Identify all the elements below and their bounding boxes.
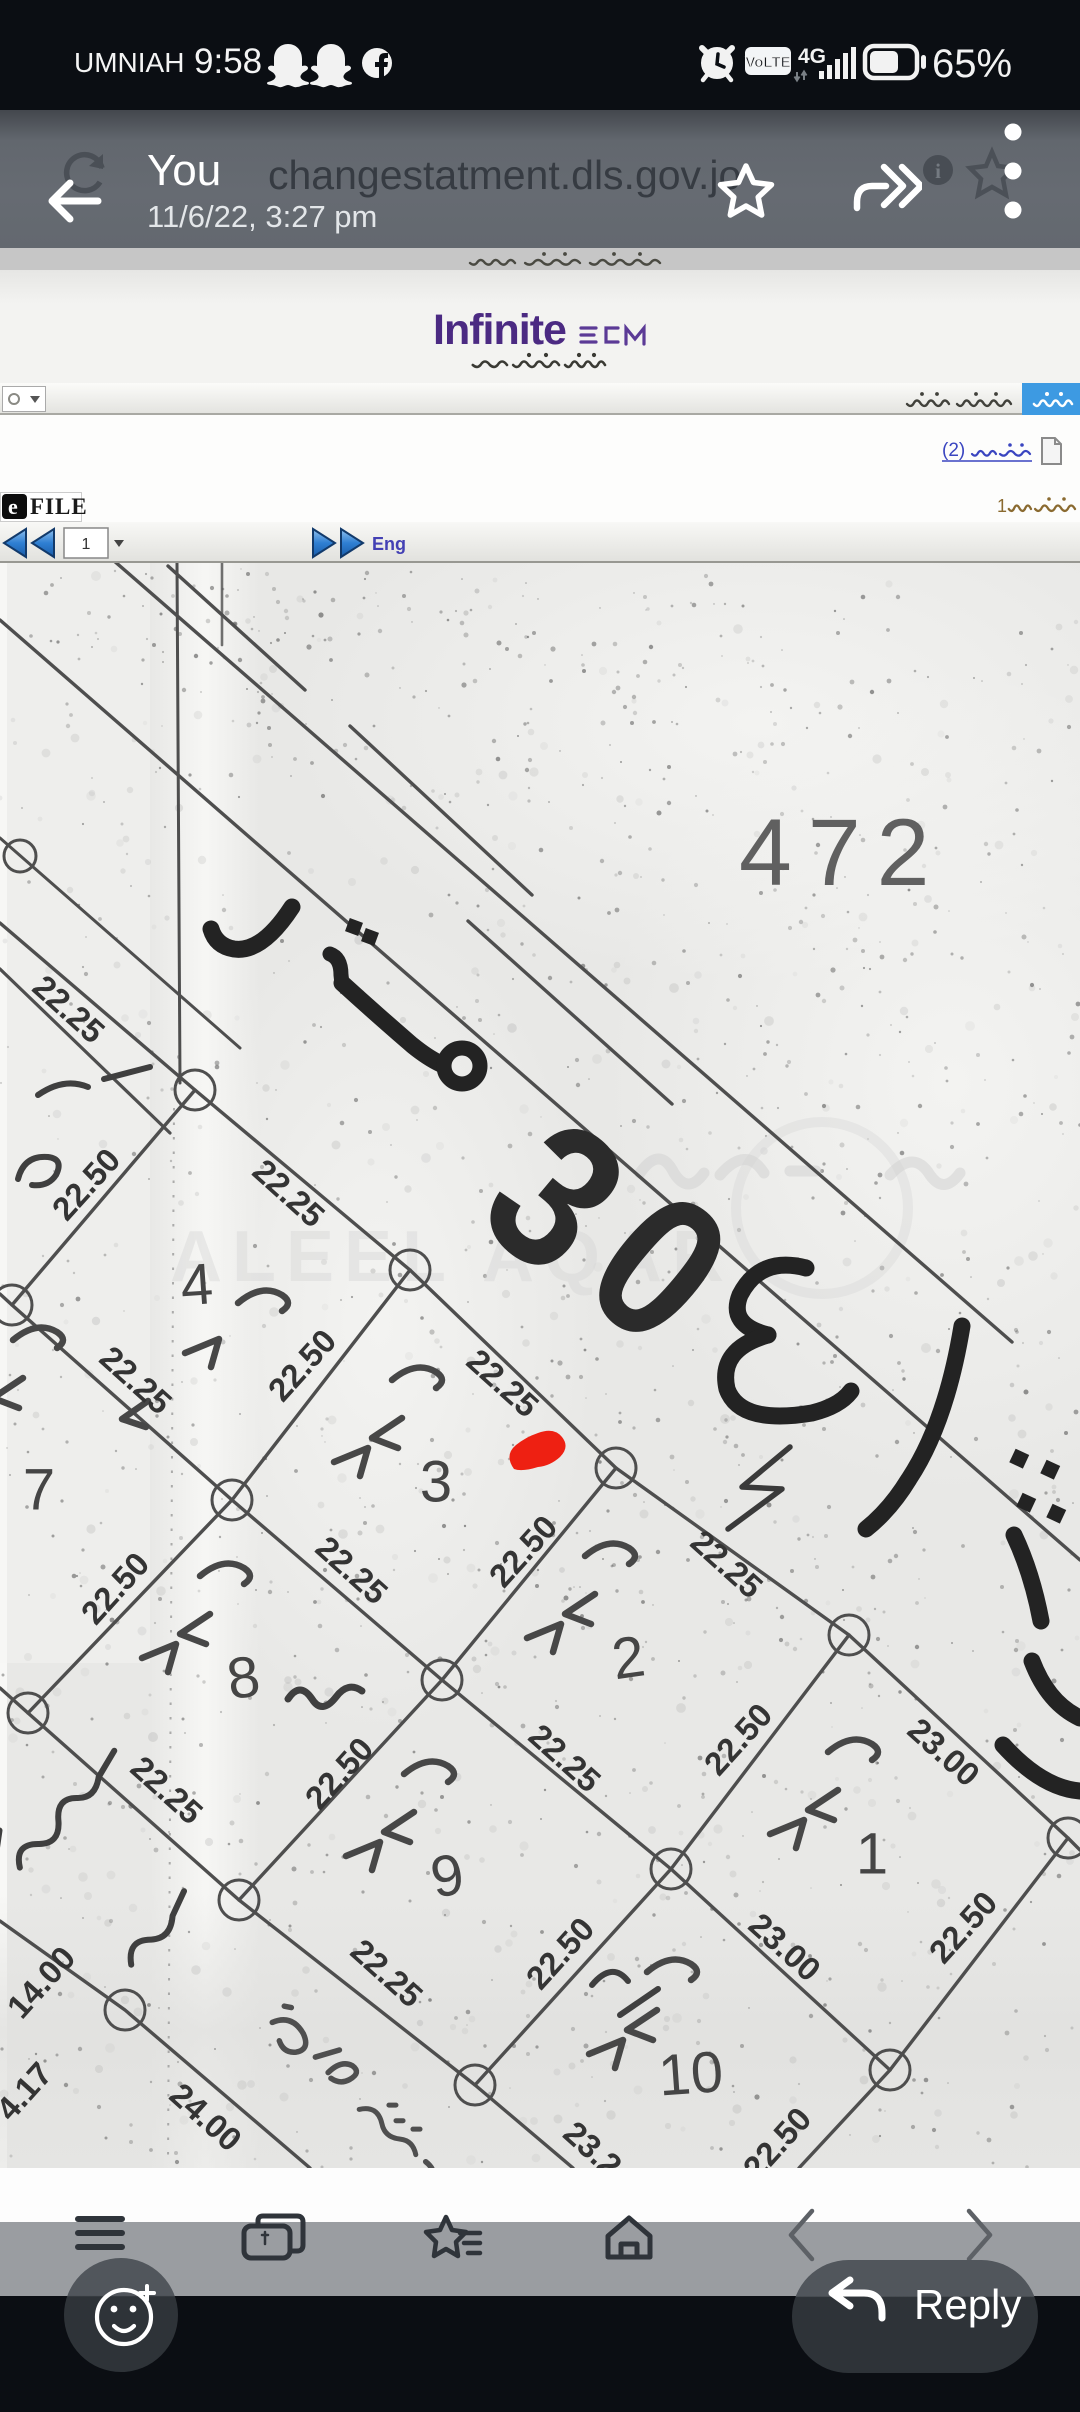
svg-text:Eng: Eng: [372, 534, 406, 554]
svg-text:3: 3: [420, 1449, 452, 1514]
svg-text:VoLTE: VoLTE: [745, 54, 790, 71]
svg-text:1: 1: [856, 1821, 888, 1886]
svg-text:4G: 4G: [798, 45, 826, 68]
svg-text:10: 10: [656, 2039, 725, 2108]
svg-text:1: 1: [997, 496, 1007, 516]
svg-text:65%: 65%: [932, 42, 1012, 86]
svg-text:Reply: Reply: [914, 2281, 1021, 2328]
svg-text:i: i: [935, 159, 941, 183]
svg-text:4: 4: [178, 1251, 215, 1318]
svg-text:7: 7: [23, 1457, 55, 1522]
svg-text:(2): (2): [942, 440, 965, 461]
svg-text:472: 472: [739, 800, 946, 906]
svg-text:1: 1: [82, 536, 91, 553]
